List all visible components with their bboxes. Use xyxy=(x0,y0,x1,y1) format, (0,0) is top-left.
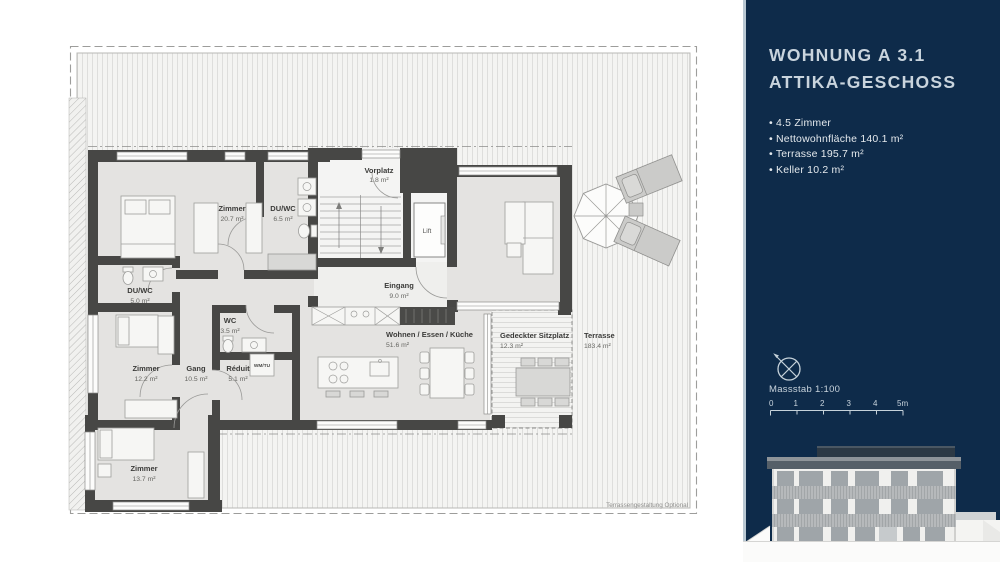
room-label: Wohnen / Essen / Küche xyxy=(386,330,473,339)
room-area: 12.2 m² xyxy=(134,376,158,383)
scale-tick-label: 3 xyxy=(847,399,852,408)
room-area: 9.0 m² xyxy=(389,293,409,300)
lift: Lift xyxy=(414,203,445,257)
boundary-hatch-strip xyxy=(69,98,86,510)
outdoor-table xyxy=(516,368,570,396)
room-area: 10.5 m² xyxy=(184,376,208,383)
dining-table xyxy=(430,348,464,398)
scale-tick-label: 5m xyxy=(897,399,908,408)
room-label: DU/WC xyxy=(270,204,296,213)
scale-tick-label: 4 xyxy=(873,399,878,408)
scale-label: Massstab 1:100 xyxy=(769,384,840,395)
title-line1: WOHNUNG A 3.1 xyxy=(769,45,926,65)
room-area: 20.7 m² xyxy=(220,216,244,223)
terrace-note: Terrassengestaltung Optional xyxy=(606,502,688,509)
fact-rooms: 4.5 Zimmer xyxy=(769,116,903,132)
wc-fixtures xyxy=(223,336,266,353)
apartment-facts: 4.5 Zimmer Nettowohnfläche 140.1 m² Terr… xyxy=(769,116,903,178)
room-area: 51.6 m² xyxy=(386,342,410,349)
room-area: 13.7 m² xyxy=(132,476,156,483)
room-area: 1.8 m² xyxy=(369,177,389,184)
room-label: DU/WC xyxy=(127,286,153,295)
toilet xyxy=(311,225,317,237)
sideboard xyxy=(125,400,177,418)
wm-label: WM/TU xyxy=(254,363,271,369)
stool xyxy=(326,391,340,397)
room-area: 5.1 m² xyxy=(228,376,248,383)
wardrobe xyxy=(194,203,218,253)
room-label: Terrasse xyxy=(584,331,615,340)
tall-cabinets xyxy=(400,307,455,325)
title-line2: ATTIKA-GESCHOSS xyxy=(769,72,956,92)
lift-label: Lift xyxy=(423,228,432,235)
fact-terrace: Terrasse 195.7 m² xyxy=(769,147,903,163)
fact-living-area: Nettowohnfläche 140.1 m² xyxy=(769,132,903,148)
desk xyxy=(158,316,174,354)
wardrobe xyxy=(188,452,204,498)
room-area: 12.3 m² xyxy=(500,343,524,350)
room-label: Gang xyxy=(186,364,206,373)
room-area: 5.0 m² xyxy=(130,298,150,305)
apartment-title: WOHNUNG A 3.1 ATTIKA-GESCHOSS xyxy=(769,42,956,96)
room-label: Zimmer xyxy=(130,464,157,473)
sink xyxy=(242,338,266,352)
room-label: Réduit xyxy=(226,364,250,373)
room-label: Zimmer xyxy=(218,204,245,213)
stool xyxy=(374,391,388,397)
sink xyxy=(143,267,163,281)
scale-bar: 0 1 2 3 4 5m xyxy=(769,398,929,420)
building-elevation xyxy=(743,438,1000,562)
room-area: 6.5 m² xyxy=(273,216,293,223)
dining-set xyxy=(420,348,474,398)
laundry: WM/TU xyxy=(250,354,274,376)
nightstand xyxy=(98,464,111,477)
info-sidebar: WOHNUNG A 3.1 ATTIKA-GESCHOSS 4.5 Zimmer… xyxy=(743,0,1000,562)
north-arrow-icon xyxy=(765,344,811,386)
room-label: Gedeckter Sitzplatz xyxy=(500,331,569,340)
wardrobe xyxy=(246,203,262,253)
room-label: WC xyxy=(224,316,237,325)
scale-tick-label: 2 xyxy=(820,399,825,408)
room-area: 3.5 m² xyxy=(220,328,240,335)
room-label: Zimmer xyxy=(132,364,159,373)
room-area: 183.4 m² xyxy=(584,343,612,350)
brochure-page: Lift xyxy=(0,0,1000,562)
outdoor-dining-set xyxy=(516,358,570,406)
room-label: Vorplatz xyxy=(364,166,393,175)
fact-cellar: Keller 10.2 m² xyxy=(769,163,903,179)
room-label: Eingang xyxy=(384,281,414,290)
island-sink xyxy=(370,362,389,376)
floor-plan: Lift xyxy=(0,0,716,562)
lounger-side-table xyxy=(629,203,643,216)
scale-tick-label: 1 xyxy=(794,399,799,408)
stool xyxy=(350,391,364,397)
toilet xyxy=(223,340,233,353)
shower xyxy=(268,254,316,270)
scale-tick-label: 0 xyxy=(769,399,774,408)
side-table xyxy=(507,243,521,257)
